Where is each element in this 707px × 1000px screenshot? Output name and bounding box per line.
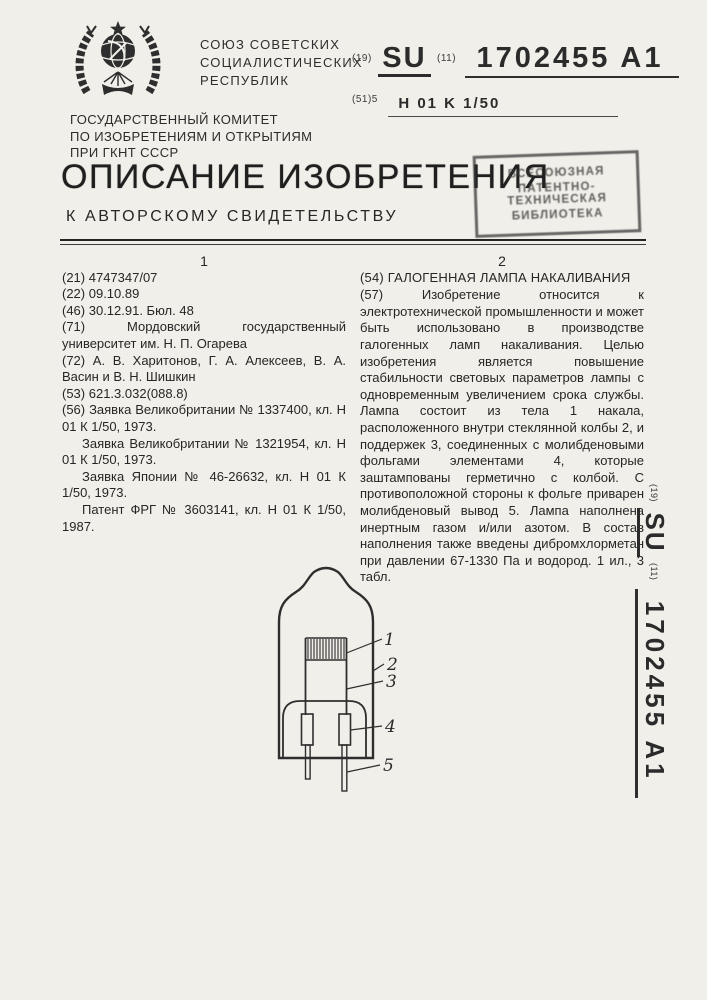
inid-code-11: (11) — [649, 563, 659, 580]
inid-code-19: (19) — [352, 53, 372, 64]
bibliographic-item: (56) Заявка Великобритании № 1337400, кл… — [62, 402, 346, 435]
side-publication-number: (19) SU (11) 1702455 A1 — [628, 484, 670, 764]
filament-hatching — [308, 639, 344, 659]
bibliographic-item: (22) 09.10.89 — [62, 286, 346, 303]
country-name: СОЮЗ СОВЕТСКИХ СОЦИАЛИСТИЧЕСКИХ РЕСПУБЛИ… — [200, 36, 363, 90]
stamp-line: БИБЛИОТЕКА — [478, 206, 638, 224]
ipc-class: H 01 K 1/50 — [388, 95, 618, 117]
bibliographic-item: Патент ФРГ № 3603141, кл. Н 01 К 1/50, 1… — [62, 502, 346, 535]
left-column: 1 (21) 4747347/07 (22) 09.10.89 (46) 30.… — [62, 253, 346, 586]
figure-label-1: 1 — [384, 630, 395, 650]
bibliographic-item: Заявка Японии № 46-26632, кл. Н 01 К 1/5… — [62, 469, 346, 502]
inid-code-11: (11) — [437, 53, 456, 64]
country-line: СОЮЗ СОВЕТСКИХ — [200, 36, 363, 54]
figure-label-4: 4 — [384, 717, 396, 737]
issuing-committee: ГОСУДАРСТВЕННЫЙ КОМИТЕТ ПО ИЗОБРЕТЕНИЯМ … — [70, 112, 312, 162]
leader-line-5 — [347, 765, 380, 772]
bibliographic-item: (53) 621.3.032(088.8) — [62, 386, 346, 403]
document-body: 1 (21) 4747347/07 (22) 09.10.89 (46) 30.… — [62, 253, 644, 586]
bibliographic-item: (71) Мордовский государственный универси… — [62, 319, 346, 352]
country-code: SU — [378, 42, 430, 77]
right-column: 2 (54) ГАЛОГЕННАЯ ЛАМПА НАКАЛИВАНИЯ (57)… — [360, 253, 644, 586]
library-stamp: ВСЕСОЮЗНАЯ ПАТЕНТНО-ТЕХНИЧЕСКАЯ БИБЛИОТЕ… — [473, 150, 642, 238]
invention-title: (54) ГАЛОГЕННАЯ ЛАМПА НАКАЛИВАНИЯ — [360, 270, 644, 287]
publication-number: 1702455 A1 — [465, 42, 680, 78]
figure-label-5: 5 — [383, 756, 394, 776]
bibliographic-item: (21) 4747347/07 — [62, 270, 346, 287]
ussr-coat-of-arms-icon — [72, 20, 164, 96]
lead-left — [306, 745, 311, 779]
country-line: СОЦИАЛИСТИЧЕСКИХ — [200, 54, 363, 72]
leader-line-2 — [373, 664, 384, 671]
abstract-text: (57) Изобретение относится к электротехн… — [360, 287, 644, 586]
column-page-marker: 1 — [62, 253, 346, 270]
inid-code-19: (19) — [649, 484, 659, 502]
lead-right — [342, 745, 347, 791]
bibliographic-item: Заявка Великобритании № 1321954, кл. Н 0… — [62, 436, 346, 469]
foil-left — [302, 714, 314, 745]
committee-line: ГОСУДАРСТВЕННЫЙ КОМИТЕТ — [70, 112, 312, 129]
publication-number: 1702455 A1 — [635, 589, 670, 798]
ipc-class-line: (51)5 H 01 K 1/50 — [352, 94, 618, 117]
stamp-line: ПАТЕНТНО-ТЕХНИЧЕСКАЯ — [477, 179, 638, 209]
country-code: SU — [637, 508, 670, 556]
foil-right — [339, 714, 351, 745]
committee-line: ПО ИЗОБРЕТЕНИЯМ И ОТКРЫТИЯМ — [70, 129, 312, 146]
figure-label-3: 3 — [386, 672, 397, 692]
publication-number-line: (19) SU (11) 1702455 A1 — [352, 42, 679, 75]
bibliographic-item: (46) 30.12.91. Бюл. 48 — [62, 303, 346, 320]
lamp-figure: 1 2 3 4 5 — [268, 560, 438, 805]
patent-document-page: СОЮЗ СОВЕТСКИХ СОЦИАЛИСТИЧЕСКИХ РЕСПУБЛИ… — [0, 0, 707, 1000]
document-subtitle: К АВТОРСКОМУ СВИДЕТЕЛЬСТВУ — [66, 208, 398, 226]
leader-line-3 — [347, 681, 384, 689]
leader-line-1 — [347, 639, 383, 653]
country-line: РЕСПУБЛИК — [200, 72, 363, 90]
inid-code-51: (51)5 — [352, 94, 378, 105]
bibliographic-item: (72) А. В. Харитонов, Г. А. Алексеев, В.… — [62, 353, 346, 386]
header-divider — [60, 239, 646, 245]
column-page-marker: 2 — [360, 253, 644, 270]
